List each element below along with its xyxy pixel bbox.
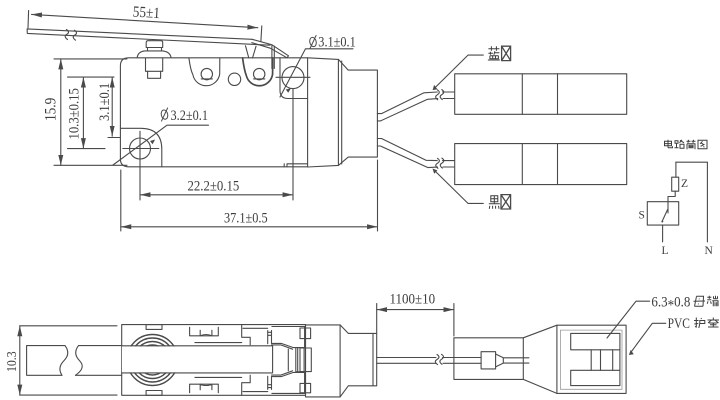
svg-text:1100±10: 1100±10 [390,291,436,308]
svg-text:6.3*0.8: 6.3*0.8 [651,293,690,313]
svg-text:PVC: PVC [668,315,690,332]
svg-text:37.1±0.5: 37.1±0.5 [224,210,268,226]
svg-text:22.2±0.15: 22.2±0.15 [188,179,240,195]
svg-text:3.2±0.1: 3.2±0.1 [171,107,208,123]
svg-text:55±1: 55±1 [132,4,160,23]
svg-text:10.3±0.15: 10.3±0.15 [66,88,82,140]
svg-text:L: L [662,245,669,257]
svg-text:N: N [705,245,714,257]
svg-text:3.1±0.1: 3.1±0.1 [318,33,355,49]
svg-text:10.3: 10.3 [4,351,19,372]
svg-text:15.9: 15.9 [42,98,59,121]
svg-text:3.1±0.1: 3.1±0.1 [96,83,112,121]
svg-text:S: S [639,210,645,222]
svg-text:Z: Z [681,178,688,190]
